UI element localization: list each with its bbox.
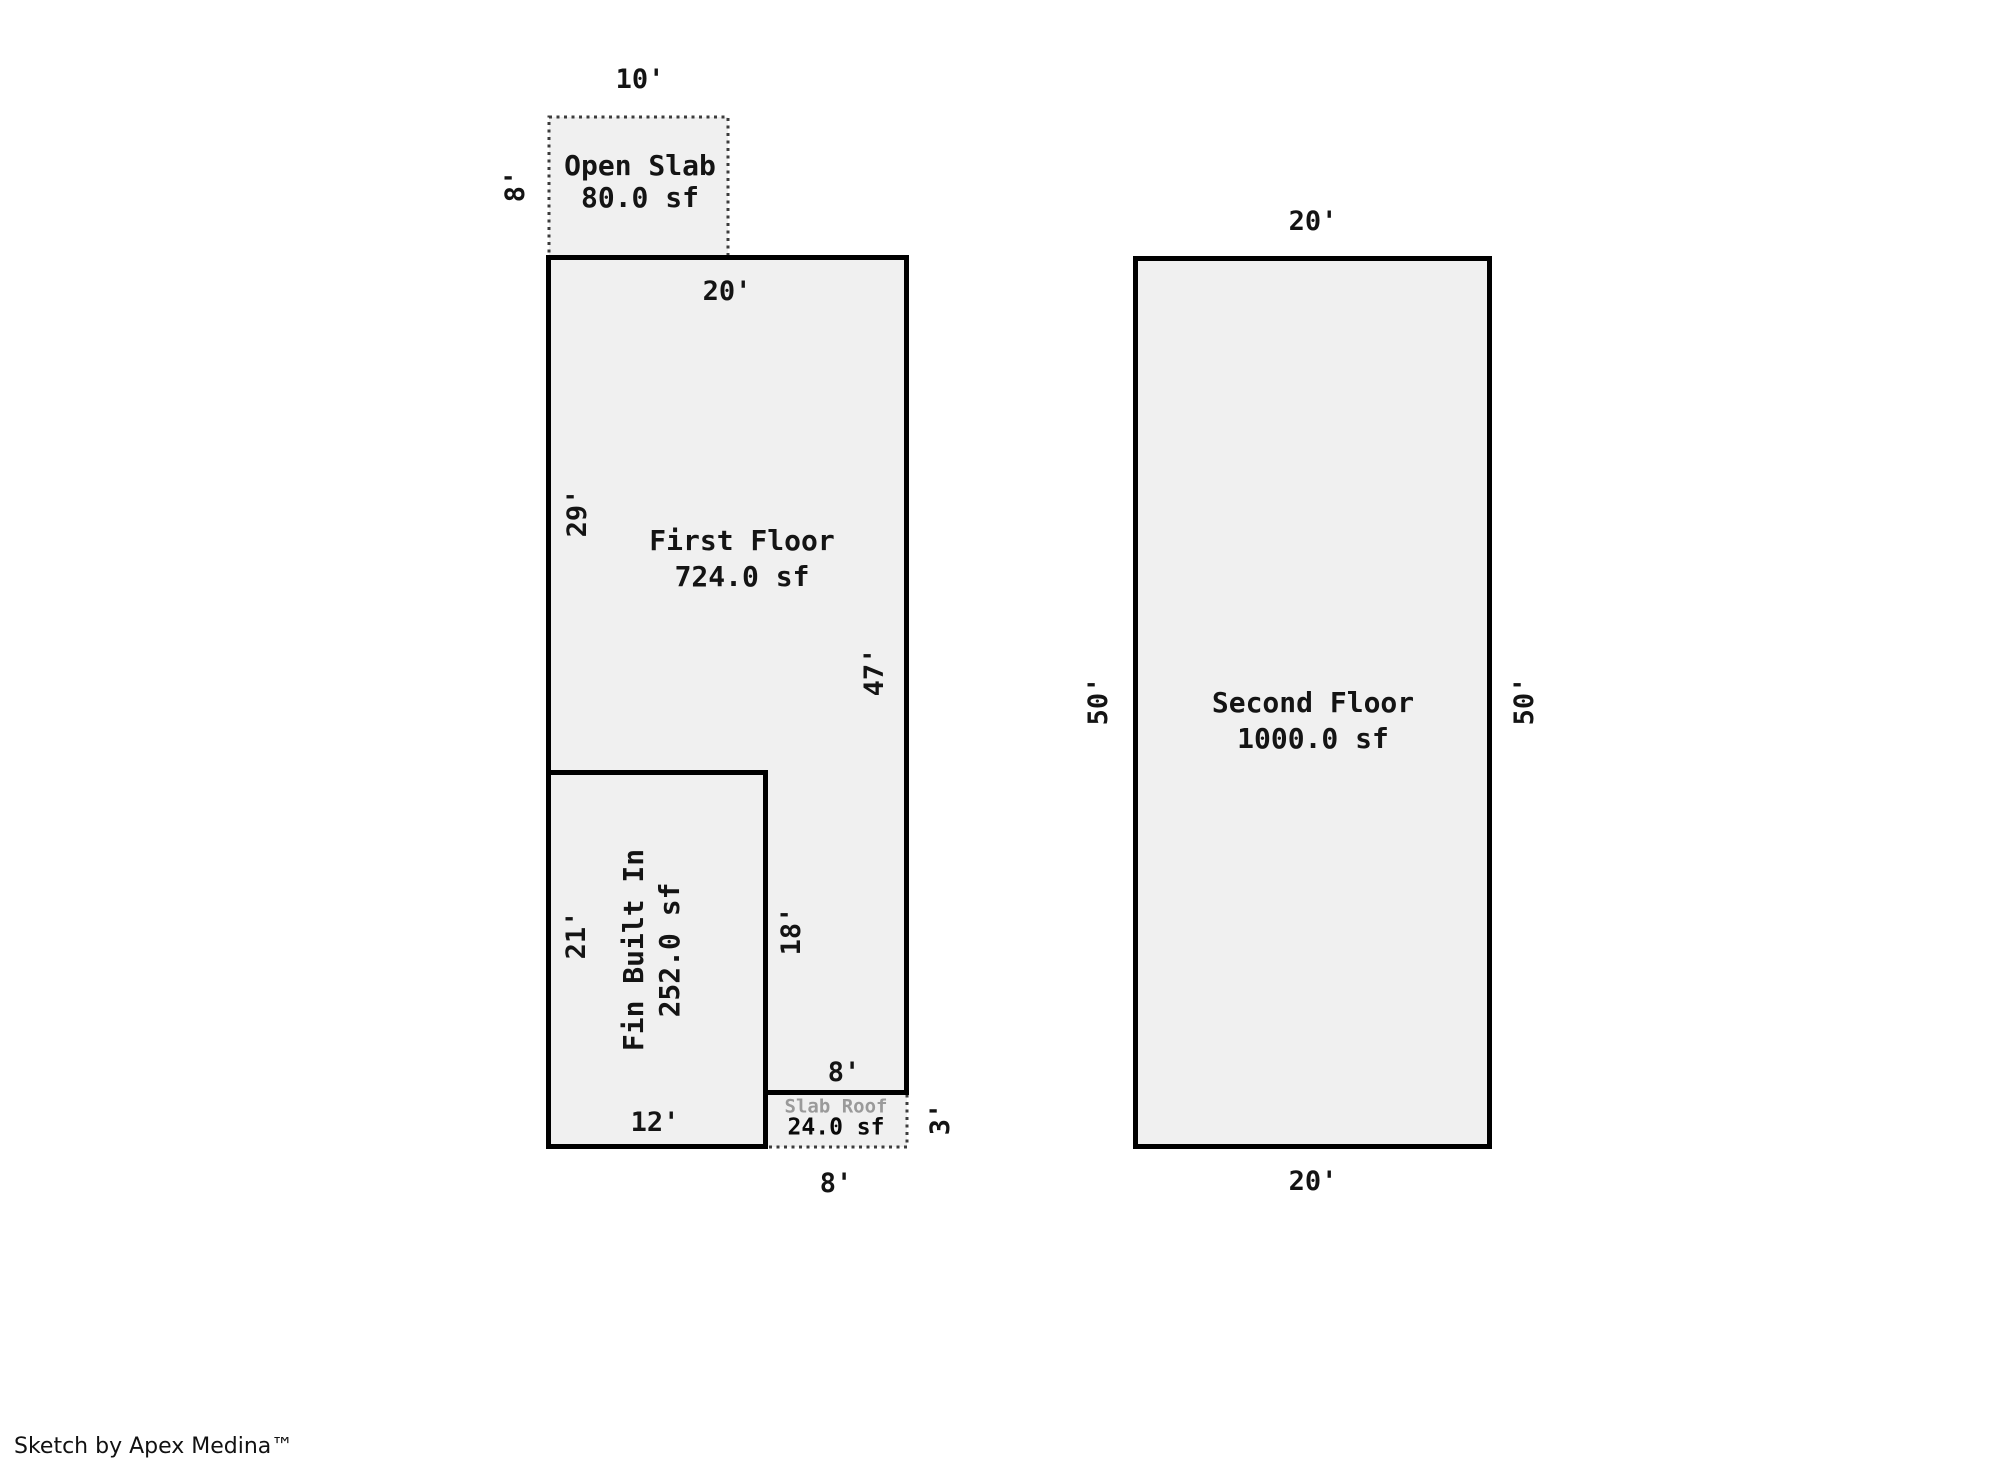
- first-floor-notch-width-dim: 8': [828, 1058, 861, 1088]
- slab-roof-name: Slab Roof: [785, 1097, 888, 1117]
- second-floor-left-height-dim: 50': [1084, 677, 1114, 726]
- first-floor-area: 724.0 sf: [649, 559, 834, 595]
- slab-roof-width-dim: 8': [820, 1169, 853, 1199]
- first-floor-label: First Floor 724.0 sf: [649, 523, 834, 595]
- slab-roof-height-dim: 3': [926, 1103, 956, 1136]
- open-slab-label: Open Slab 80.0 sf: [564, 150, 716, 214]
- second-floor-right-height-dim: 50': [1510, 677, 1540, 726]
- open-slab-name: Open Slab: [564, 150, 716, 182]
- fin-built-in-name: Fin Built In: [616, 849, 652, 1051]
- second-floor-top-width-dim: 20': [1289, 207, 1338, 237]
- second-floor-area: 1000.0 sf: [1212, 721, 1414, 757]
- first-floor-left-height-dim: 29': [563, 489, 593, 538]
- fin-built-in-width-dim: 12': [631, 1108, 680, 1138]
- first-floor-right-height-dim: 47': [860, 648, 890, 697]
- slab-roof-area: 24.0 sf: [785, 1117, 888, 1140]
- second-floor-label: Second Floor 1000.0 sf: [1212, 685, 1414, 757]
- second-floor-bottom-width-dim: 20': [1289, 1167, 1338, 1197]
- second-floor-name: Second Floor: [1212, 685, 1414, 721]
- fin-built-in-area: 252.0 sf: [652, 849, 688, 1051]
- fin-built-in-height-dim: 21': [562, 911, 592, 960]
- first-floor-notch-height-dim: 18': [777, 907, 807, 956]
- first-floor-width-dim: 20': [703, 277, 752, 307]
- slab-roof-label: Slab Roof 24.0 sf: [785, 1097, 888, 1140]
- floor-plan-sketch: 10' 8' Open Slab 80.0 sf 20' 29' 47' 18'…: [0, 0, 2000, 1466]
- sketch-credit: Sketch by Apex Medina™: [14, 1434, 293, 1459]
- first-floor-name: First Floor: [649, 523, 834, 559]
- open-slab-height-dim: 8': [501, 170, 531, 203]
- open-slab-area: 80.0 sf: [564, 182, 716, 214]
- open-slab-width-dim: 10': [616, 65, 665, 95]
- floor-plan-drawing: [0, 0, 2000, 1466]
- fin-built-in-label: Fin Built In 252.0 sf: [616, 849, 688, 1051]
